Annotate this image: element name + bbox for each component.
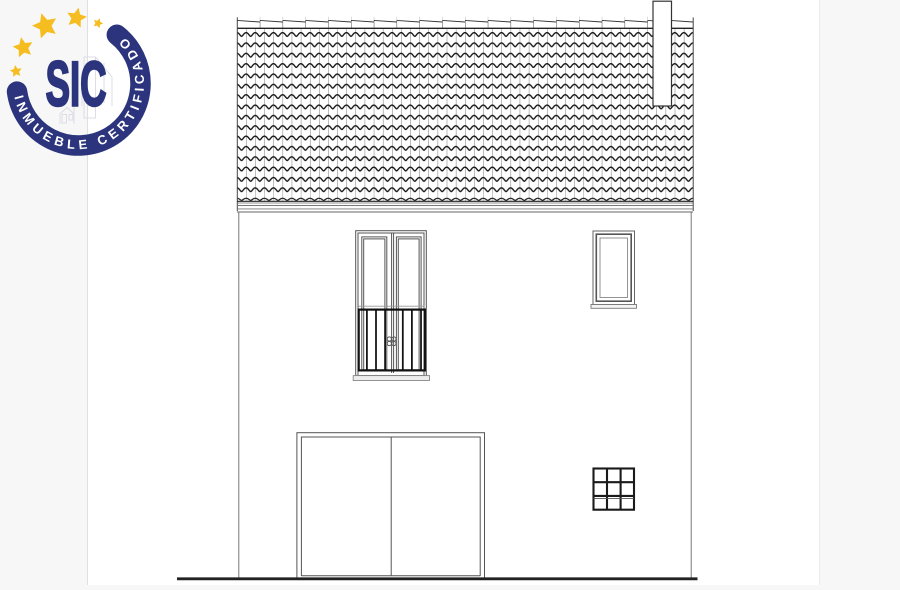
svg-text:SIC: SIC [46, 49, 107, 119]
